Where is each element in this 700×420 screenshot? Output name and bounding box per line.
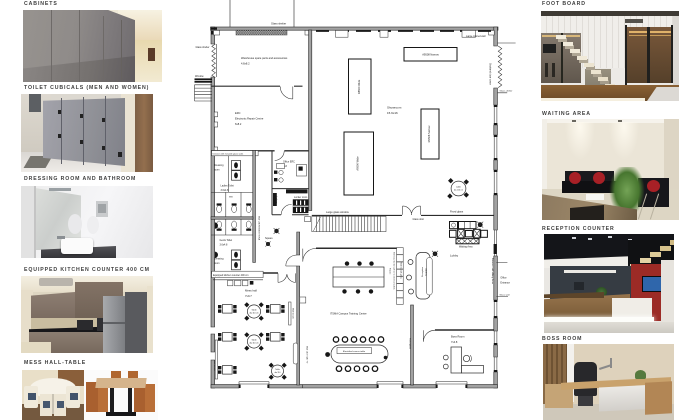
svg-text:Ladies Toilet: Ladies Toilet [221, 185, 235, 188]
svg-text:Locker room: Locker room [294, 196, 307, 199]
svg-text:ERC: ERC [235, 111, 241, 115]
svg-text:Reception: Reception [421, 266, 424, 277]
svg-text:Dressing: Dressing [214, 257, 224, 260]
svg-text:Fixed glass: Fixed glass [450, 210, 464, 214]
svg-text:table: table [456, 186, 462, 189]
svg-text:Wall with MONDO TERA: Wall with MONDO TERA [257, 216, 260, 241]
svg-text:Large colored wall: Large colored wall [466, 35, 486, 38]
svg-text:Dressing: Dressing [214, 164, 224, 167]
svg-text:WB: WB [229, 197, 233, 199]
svg-text:Frame: Frame [389, 268, 392, 275]
svg-text:3.6x4.8: 3.6x4.8 [220, 244, 229, 247]
svg-text:R8500 Wide: R8500 Wide [357, 79, 361, 94]
svg-text:Electronic Repair Centre: Electronic Repair Centre [235, 117, 264, 121]
svg-text:Lobby: Lobby [450, 254, 459, 258]
svg-text:room: room [214, 262, 219, 265]
svg-text:Wall mounted bar with air to e: Wall mounted bar with air to electrical … [392, 252, 395, 289]
svg-text:Sliders wall glass: Sliders wall glass [400, 262, 403, 280]
svg-text:7x9.7: 7x9.7 [245, 294, 252, 298]
svg-text:ITSMA Campus Training Centre: ITSMA Campus Training Centre [330, 311, 367, 315]
svg-text:dia 110: dia 110 [275, 372, 281, 374]
svg-text:Window: Window [195, 75, 204, 78]
svg-text:Mess hall: Mess hall [245, 288, 257, 292]
svg-text:6x8.2: 6x8.2 [235, 122, 242, 126]
svg-text:4.8x8.2: 4.8x8.2 [241, 62, 250, 66]
svg-text:Warehouse spare parts and acce: Warehouse spare parts and accessories [241, 56, 288, 60]
svg-text:Large glass window: Large glass window [326, 210, 349, 214]
svg-text:Division with movable glass wa: Division with movable glass walls [213, 152, 244, 155]
svg-text:Showroom: Showroom [387, 106, 402, 110]
svg-text:A9500 Wide: A9500 Wide [356, 156, 360, 171]
svg-text:15.9x16: 15.9x16 [387, 111, 398, 115]
svg-text:Gents Toilet: Gents Toilet [220, 239, 233, 242]
svg-text:Sectional door cover: Sectional door cover [489, 63, 492, 85]
svg-text:dia 110 cm: dia 110 cm [249, 312, 259, 314]
svg-text:Office ERC: Office ERC [283, 161, 295, 164]
svg-text:7x4.8: 7x4.8 [451, 340, 458, 344]
svg-text:3.6x4.8: 3.6x4.8 [221, 189, 230, 192]
svg-text:room: room [214, 168, 219, 171]
svg-text:Wall shelf with TV: Wall shelf with TV [305, 346, 308, 364]
svg-text:Boss Room: Boss Room [451, 335, 464, 339]
svg-text:Counter: Counter [424, 268, 427, 276]
svg-text:Entrance: Entrance [500, 282, 510, 285]
svg-text:Glass shelter: Glass shelter [271, 21, 286, 25]
svg-text:Fixed glass: Fixed glass [408, 338, 410, 350]
svg-text:Waiting Area: Waiting Area [459, 246, 473, 249]
svg-text:Glass shelter: Glass shelter [196, 46, 210, 49]
svg-text:Wall bench: Wall bench [213, 360, 215, 372]
svg-text:Wall bench: Wall bench [292, 308, 294, 320]
svg-text:Equipped kitchen counter 400 c: Equipped kitchen counter 400 cm [213, 274, 248, 277]
svg-text:Electrified course table: Electrified course table [343, 350, 366, 353]
svg-text:dia 110 cm: dia 110 cm [454, 190, 464, 192]
svg-text:R9508 Narrow: R9508 Narrow [427, 126, 431, 143]
svg-text:dia 110 cm: dia 110 cm [249, 342, 259, 344]
svg-text:Glass door: Glass door [413, 218, 425, 221]
svg-text:Glass shelter: Glass shelter [500, 90, 513, 93]
svg-text:Entrance with sliding doors: Entrance with sliding doors [491, 258, 494, 285]
svg-text:Square: Square [265, 237, 273, 240]
svg-text:Table: Table [251, 340, 257, 342]
svg-text:Office: Office [500, 277, 507, 280]
svg-text:Glass wall: Glass wall [499, 294, 509, 296]
svg-text:Table: Table [251, 310, 257, 312]
svg-text:A9508 Narrow: A9508 Narrow [422, 52, 439, 56]
